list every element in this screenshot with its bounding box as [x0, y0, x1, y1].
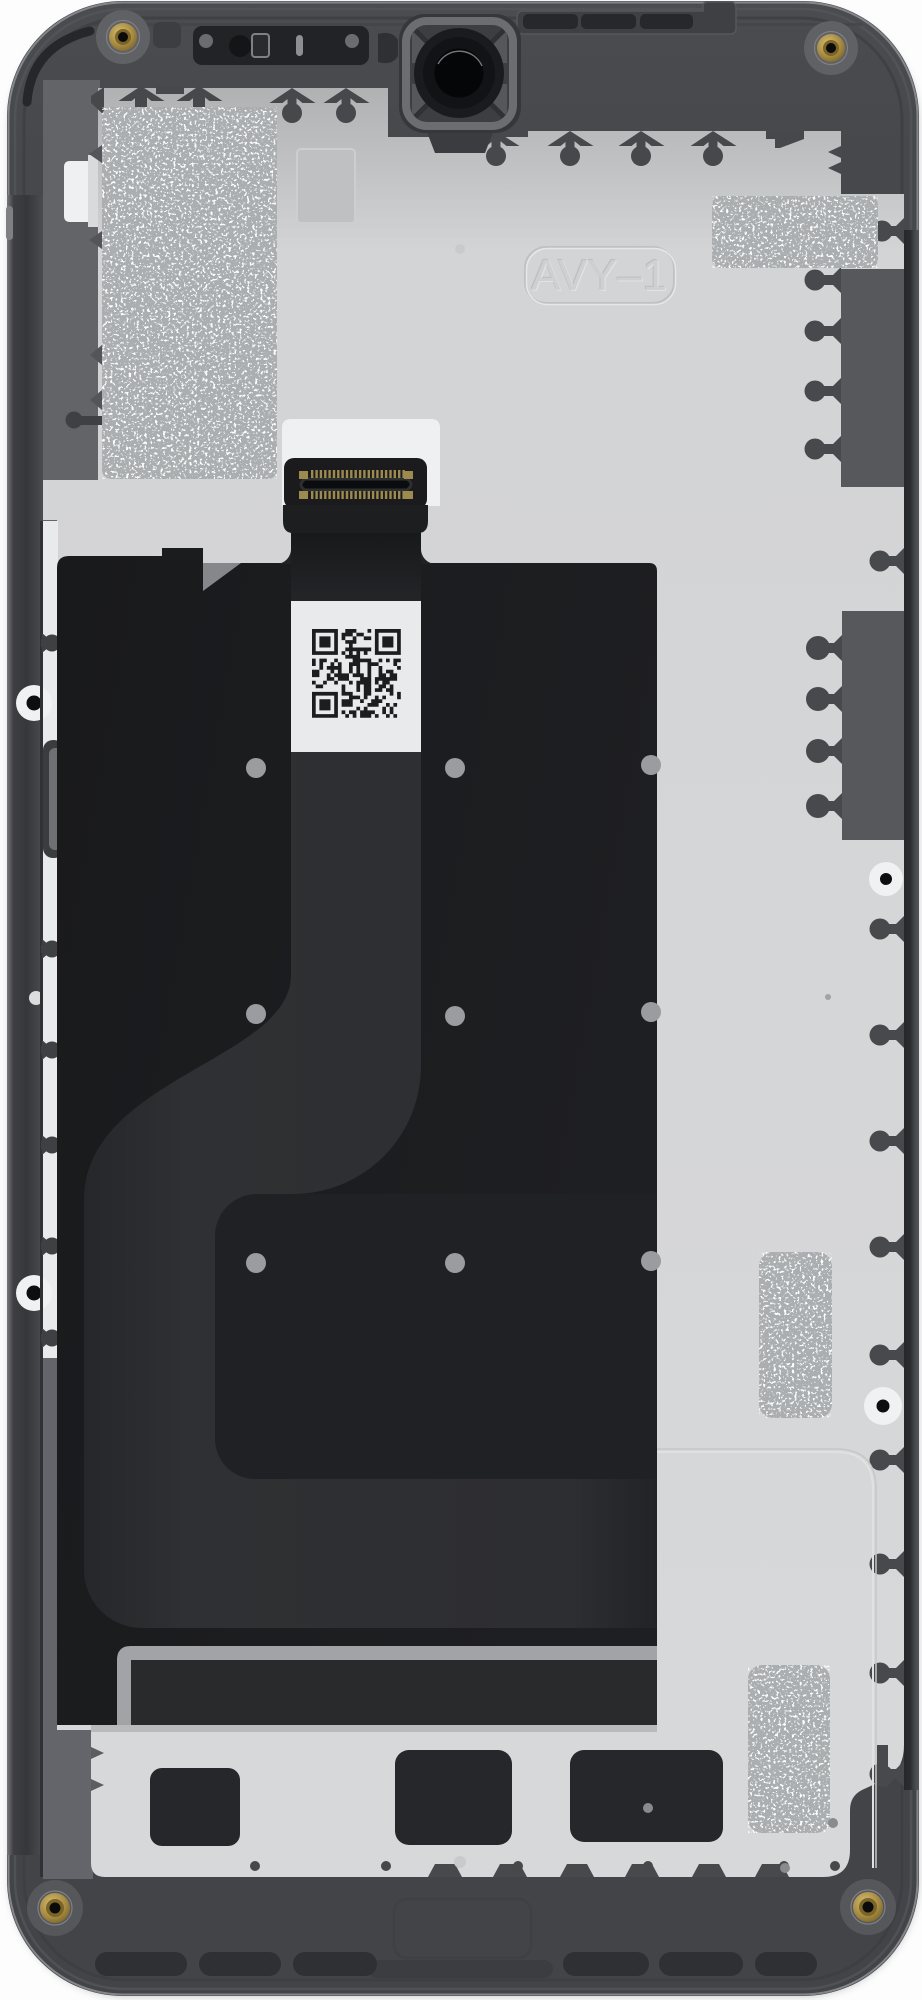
svg-text:AVY–1: AVY–1	[531, 251, 667, 300]
